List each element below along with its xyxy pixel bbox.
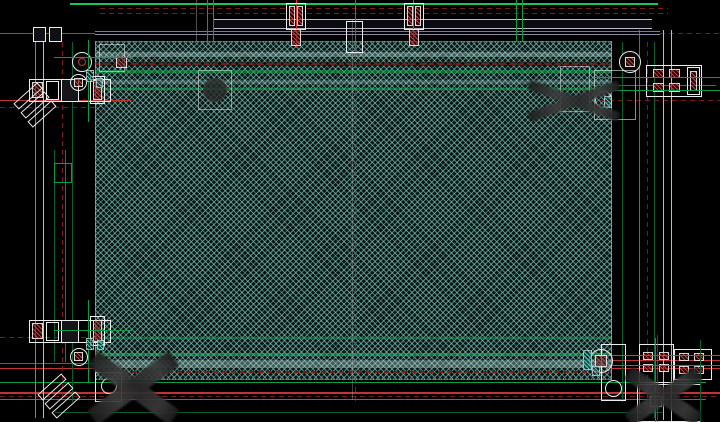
bl-glazing-bit-2 xyxy=(97,340,104,350)
tl-green-h xyxy=(54,57,132,58)
right-red-dash xyxy=(660,33,720,34)
cad-viewport[interactable] xyxy=(0,0,720,422)
cursor-artifact-bottom-right-x xyxy=(626,368,702,422)
bl-plate-bolt xyxy=(93,320,102,342)
top-green-pair-r1 xyxy=(516,0,517,42)
top-green-pair-r2 xyxy=(522,0,523,42)
top-connector-1-bolt-left xyxy=(289,6,295,26)
top-red-dash-2 xyxy=(100,13,668,14)
top-connector-1-bolt-right xyxy=(297,6,303,26)
br-glazing-bit-2 xyxy=(592,366,600,376)
br-bolt-2 xyxy=(659,352,669,360)
tl-bolt-square xyxy=(116,57,127,68)
br-bolt-1 xyxy=(643,352,653,360)
bl-glazing-bit-1 xyxy=(86,338,94,350)
bottom-rail-green-line xyxy=(96,337,611,339)
bl-wheel-hub xyxy=(74,352,83,361)
top-rail-red-dash xyxy=(96,63,611,65)
left-green-box xyxy=(54,163,72,183)
cursor-artifact-bottom-left-x xyxy=(88,352,178,422)
bl-green-h xyxy=(54,330,132,331)
center-red-centerline-v xyxy=(355,0,356,404)
tl-glazing-bit-2 xyxy=(96,78,103,88)
top-green-line xyxy=(70,3,658,5)
left-red-segment xyxy=(0,33,95,34)
tr-green-h1 xyxy=(594,77,720,78)
tr-cap-bolt xyxy=(690,71,697,91)
br-green-h2 xyxy=(612,365,720,366)
tl-clamp-2 xyxy=(49,27,62,42)
bl-centerline-2 xyxy=(0,368,100,369)
tl-roller-hub xyxy=(78,58,86,66)
top-connector-1-stem xyxy=(291,29,301,46)
bl-rail-dark xyxy=(61,320,79,343)
top-profile-bottom-edge xyxy=(213,28,652,29)
tl-wheel-hub xyxy=(74,78,83,87)
top-rail-green-band xyxy=(96,70,611,73)
br-circle xyxy=(605,380,622,397)
top-green-pair-l2 xyxy=(213,0,214,42)
br-glazing-bit-1 xyxy=(583,350,592,370)
center-gray-v xyxy=(352,20,353,400)
top-profile-top-edge xyxy=(213,19,652,20)
tl-clamp-1 xyxy=(33,27,46,42)
top-red-dash-1 xyxy=(100,8,668,9)
top-connector-2-bolt-right xyxy=(415,6,421,26)
top-green-pair-l1 xyxy=(207,0,208,42)
cursor-artifact-top-right-x xyxy=(531,82,617,120)
top-connector-2-stem xyxy=(409,29,419,46)
tr-roller-hub xyxy=(625,57,635,67)
top-olive-line xyxy=(95,31,660,32)
top-gray-v xyxy=(196,0,197,42)
br-green-h1 xyxy=(612,355,720,356)
center-marker-box xyxy=(346,21,363,53)
top-connector-2-bolt-left xyxy=(407,6,413,26)
tl-glazing-bit-1 xyxy=(86,70,94,82)
tl-smudge xyxy=(203,78,227,102)
top-violet-line xyxy=(95,34,660,35)
bl-rail-bolt xyxy=(32,323,43,339)
bl-rail-box xyxy=(46,322,59,341)
